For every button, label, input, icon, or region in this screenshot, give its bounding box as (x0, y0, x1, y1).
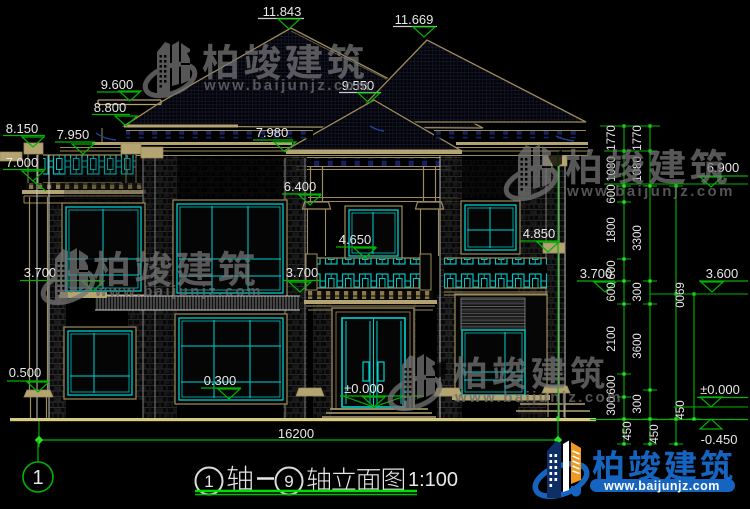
svg-text:11.843: 11.843 (263, 4, 302, 19)
svg-text:www.baijunjz.com: www.baijunjz.com (94, 283, 263, 300)
svg-text:3600: 3600 (632, 333, 644, 359)
svg-text:1800: 1800 (606, 217, 618, 243)
svg-text:±0.000: ±0.000 (344, 381, 384, 396)
svg-text:0.300: 0.300 (204, 373, 237, 388)
svg-text:11.669: 11.669 (395, 12, 434, 27)
svg-text:16200: 16200 (278, 426, 314, 441)
svg-text:1: 1 (32, 467, 43, 489)
svg-text:600: 600 (606, 282, 618, 301)
svg-text:4.650: 4.650 (339, 232, 372, 247)
svg-text:0.500: 0.500 (9, 365, 42, 380)
svg-text:4.850: 4.850 (523, 226, 556, 241)
svg-text:8.800: 8.800 (94, 100, 127, 115)
svg-text:-0.450: -0.450 (701, 432, 738, 447)
svg-text:7.000: 7.000 (6, 155, 39, 170)
svg-text:3.700: 3.700 (286, 265, 319, 280)
svg-text:600: 600 (606, 260, 618, 279)
svg-text:300: 300 (632, 282, 644, 301)
svg-text:www.baijunjz.com: www.baijunjz.com (454, 389, 623, 406)
svg-text:8.150: 8.150 (6, 121, 39, 136)
svg-text:450: 450 (649, 424, 661, 443)
svg-text:1770: 1770 (606, 125, 618, 151)
svg-text:www.baijunjz.com: www.baijunjz.com (203, 77, 372, 94)
svg-text:3300: 3300 (632, 225, 644, 251)
svg-text:9.600: 9.600 (101, 77, 134, 92)
svg-text:450: 450 (622, 421, 634, 440)
svg-text:3.700: 3.700 (24, 265, 57, 280)
svg-text:450: 450 (675, 400, 687, 419)
svg-text:3.600: 3.600 (706, 266, 739, 281)
svg-text:1770: 1770 (632, 125, 644, 151)
svg-text:6.400: 6.400 (284, 179, 317, 194)
svg-text:www.baijunjz.com: www.baijunjz.com (566, 183, 735, 200)
svg-text:9: 9 (284, 472, 293, 491)
svg-text:1:100: 1:100 (408, 469, 458, 491)
svg-text:300: 300 (632, 394, 644, 413)
svg-text:7.980: 7.980 (256, 125, 289, 140)
svg-text:7.950: 7.950 (57, 127, 90, 142)
svg-text:www.baijunjz.com: www.baijunjz.com (603, 479, 720, 493)
svg-text:2100: 2100 (606, 326, 618, 352)
svg-text:±0.000: ±0.000 (700, 382, 740, 397)
svg-text:1: 1 (204, 472, 213, 491)
svg-text:0069: 0069 (675, 282, 687, 308)
